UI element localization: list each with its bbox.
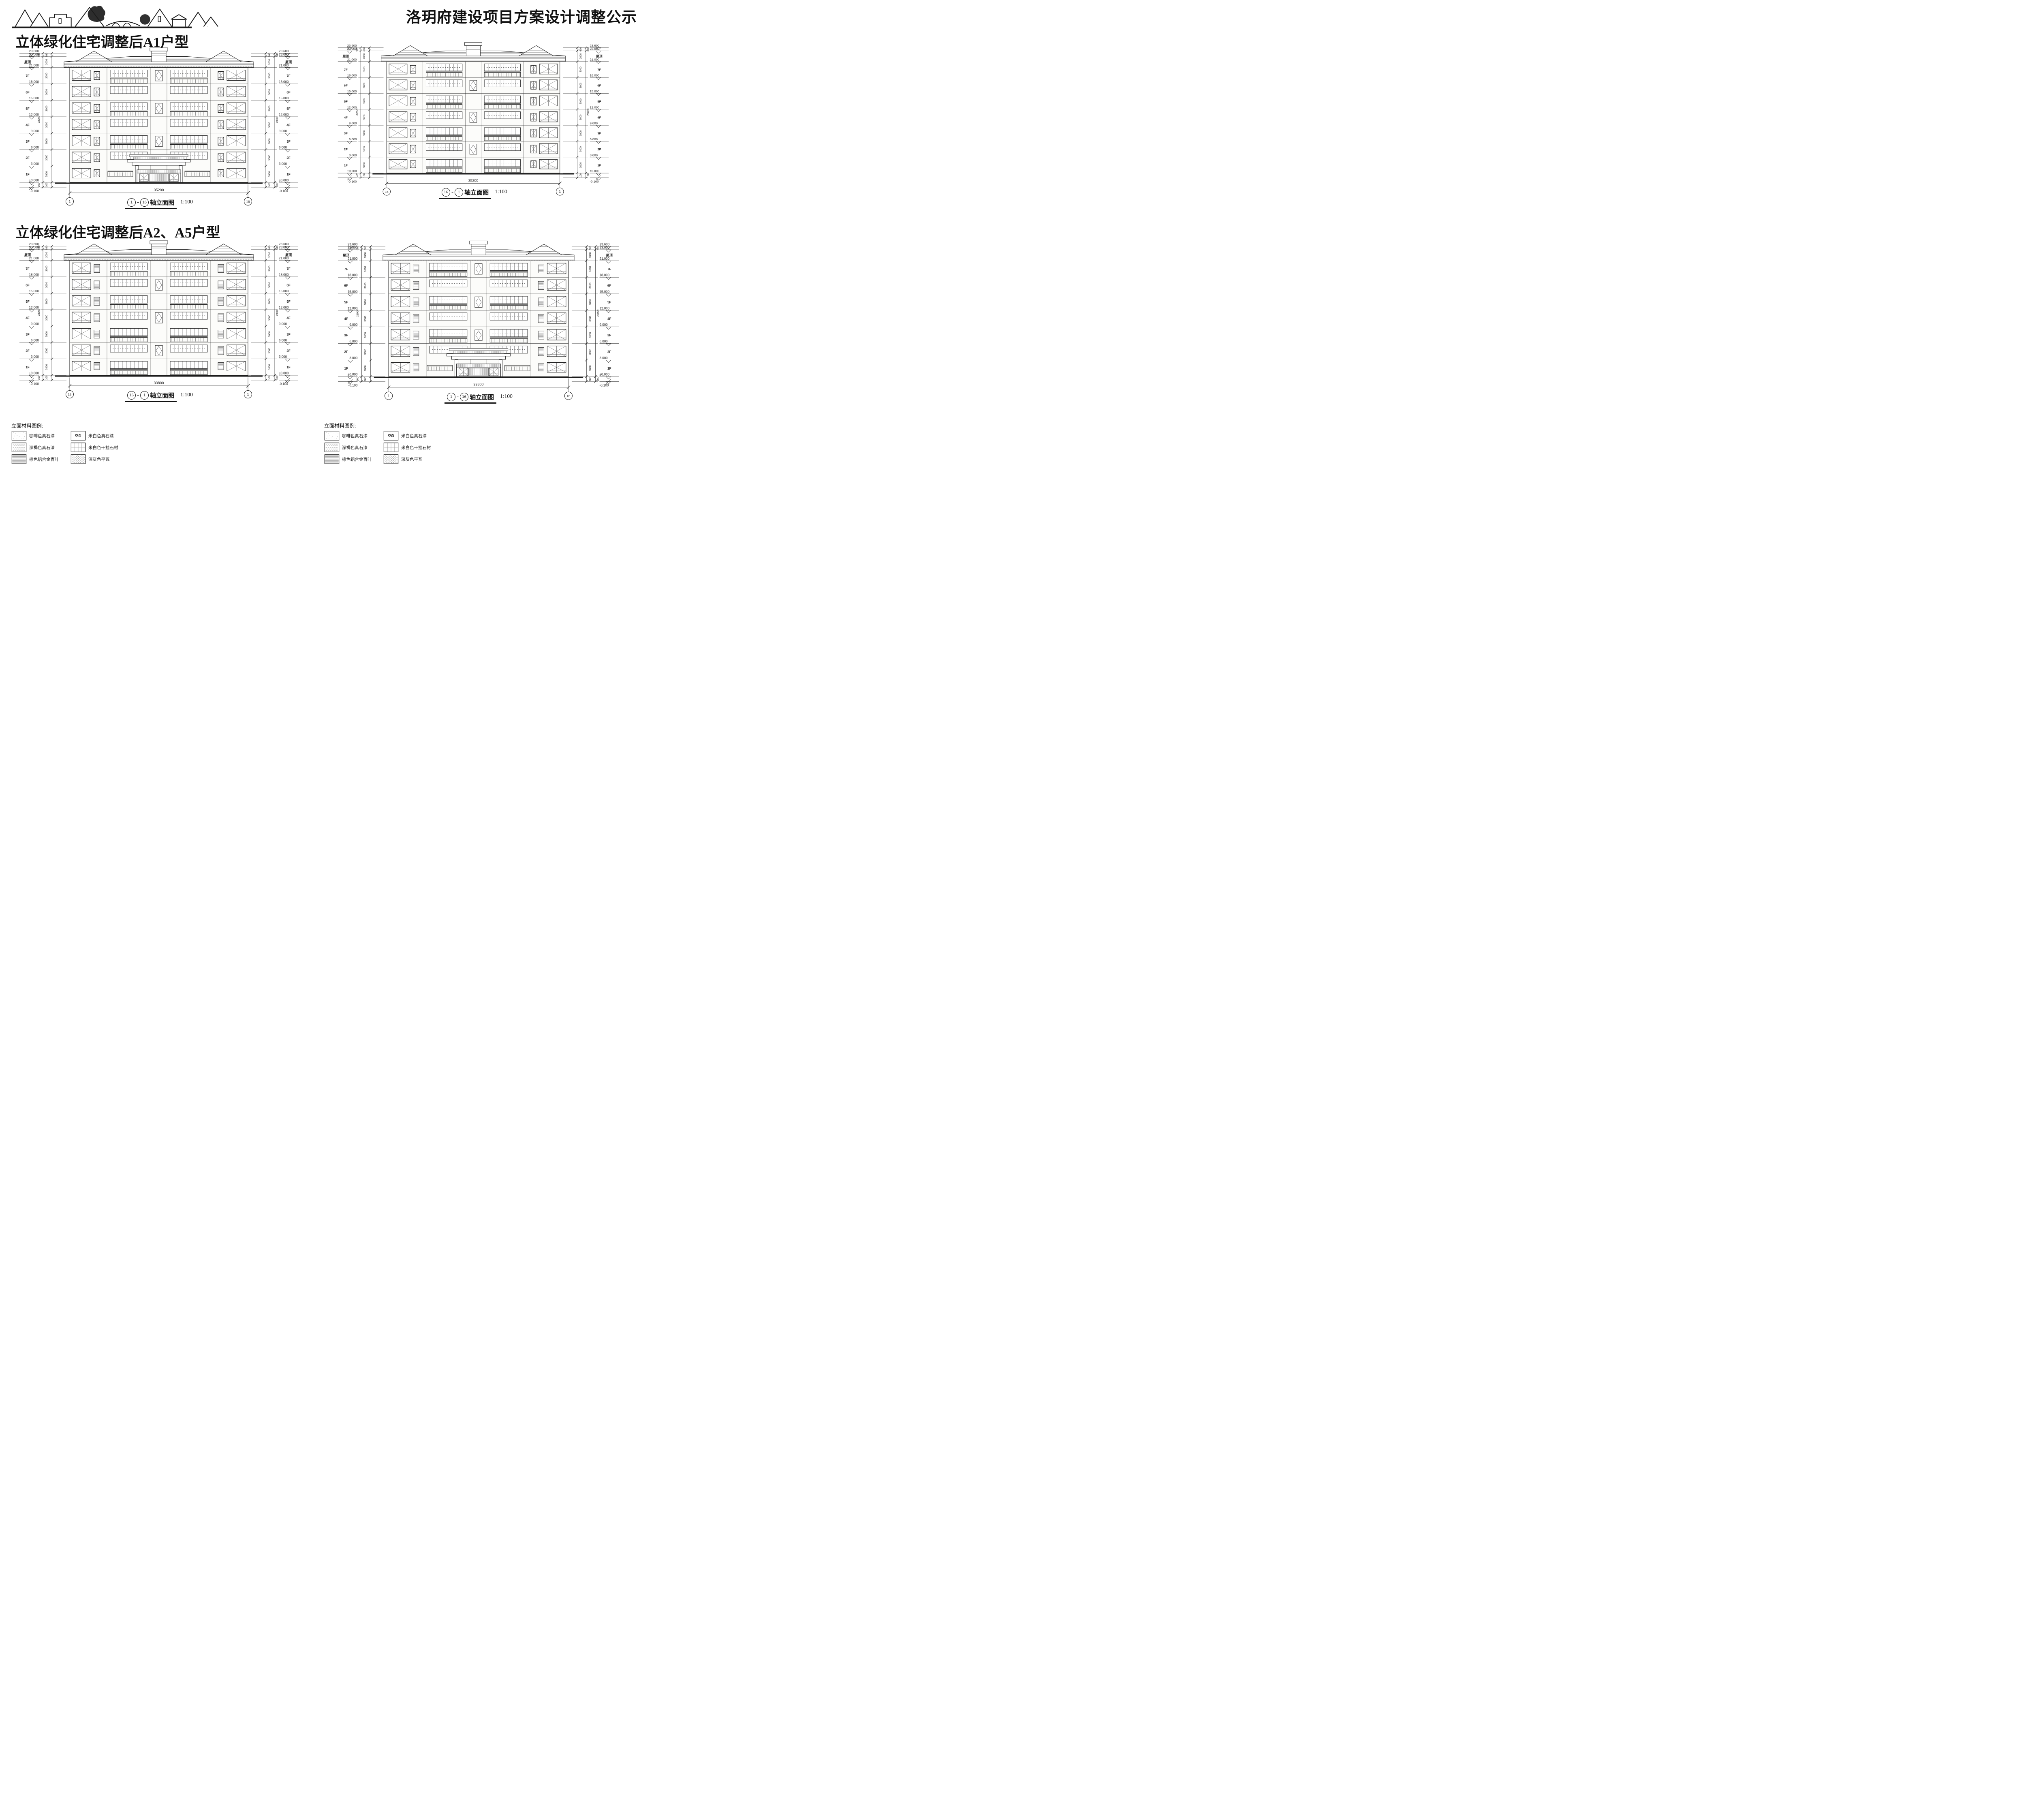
svg-text:-0.100: -0.100 [348, 180, 357, 183]
svg-text:4F: 4F [286, 123, 290, 127]
legend-swatch-louver [324, 454, 340, 464]
svg-text:18.000: 18.000 [29, 80, 39, 84]
svg-text:3000: 3000 [268, 73, 271, 79]
svg-text:4F: 4F [597, 115, 601, 119]
svg-text:35200: 35200 [468, 179, 478, 183]
svg-text:-0.100: -0.100 [30, 189, 39, 193]
svg-text:3000: 3000 [45, 73, 48, 79]
svg-text:5F: 5F [286, 107, 290, 111]
drawing-scale: 1:100 [180, 199, 193, 205]
svg-text:3F: 3F [26, 333, 29, 336]
svg-text:3000: 3000 [579, 130, 582, 136]
caption-dash: - [137, 392, 139, 399]
ruler-right: 3000300030003000300030003000200060010060… [563, 44, 609, 183]
svg-text:3000: 3000 [364, 299, 367, 305]
svg-text:9.000: 9.000 [279, 129, 287, 133]
svg-text:3000: 3000 [45, 315, 48, 321]
svg-text:12.000: 12.000 [29, 113, 39, 117]
legend-grid: 咖啡色真石漆空白米白色真石漆深褐色真石漆米白色干挂石材棕色铝合金百叶深灰色平瓦 [11, 431, 129, 464]
svg-text:100: 100 [356, 376, 359, 381]
legend-title: 立面材料图例: [324, 421, 442, 429]
svg-text:21.000: 21.000 [348, 257, 358, 261]
svg-text:3F: 3F [286, 140, 290, 143]
svg-text:3000: 3000 [268, 265, 271, 272]
legend-swatch-blank: 空白 [383, 431, 399, 441]
axis-bubble: 16 [460, 393, 468, 401]
svg-text:15.000: 15.000 [348, 290, 358, 293]
legend-item-label: 米白色真石漆 [401, 433, 427, 439]
legend-item: 咖啡色真石漆 [11, 431, 71, 441]
svg-text:-0.100: -0.100 [279, 189, 288, 193]
svg-text:6.000: 6.000 [279, 146, 287, 150]
legend-item: 空白米白色真石漆 [71, 431, 130, 441]
svg-text:9.000: 9.000 [31, 129, 39, 133]
axis-bubble: 16 [442, 188, 450, 197]
svg-text:3000: 3000 [268, 364, 271, 370]
svg-text:100: 100 [276, 182, 279, 187]
drawing-caption-main: 1-16轴立面图 [445, 393, 496, 404]
ruler-left: 3000300030003000300030003000200060010060… [19, 242, 66, 386]
svg-text:4F: 4F [344, 317, 348, 321]
svg-text:2F: 2F [26, 349, 29, 353]
svg-text:2F: 2F [286, 349, 290, 353]
svg-text:3000: 3000 [45, 265, 48, 272]
svg-text:5F: 5F [344, 100, 348, 103]
caption-text: 轴立面图 [464, 188, 489, 197]
svg-text:3000: 3000 [268, 138, 271, 144]
svg-text:3000: 3000 [364, 349, 367, 355]
axis-bubble: 1 [127, 198, 136, 207]
svg-text:5F: 5F [597, 100, 601, 103]
svg-text:-0.100: -0.100 [590, 180, 599, 183]
svg-text:6F: 6F [286, 283, 290, 287]
legend-item: 深灰色平瓦 [383, 454, 442, 464]
legend-item-label: 棕色铝合金百叶 [29, 456, 59, 462]
svg-text:6F: 6F [597, 84, 601, 88]
svg-text:15.000: 15.000 [600, 290, 610, 293]
svg-text:18.000: 18.000 [600, 274, 610, 277]
elevation-drawing: 3000300030003000300030003000200060010060… [336, 221, 622, 404]
svg-text:7F: 7F [344, 267, 348, 271]
svg-text:2000: 2000 [268, 252, 271, 258]
svg-text:3000: 3000 [364, 332, 367, 338]
svg-text:3F: 3F [344, 334, 348, 337]
legend-item: 深褐色真石漆 [324, 443, 383, 452]
legend-item: 米白色干挂石材 [71, 443, 130, 452]
svg-text:±0.000: ±0.000 [29, 179, 39, 182]
legend-item-label: 深褐色真石漆 [29, 445, 55, 451]
svg-text:3000: 3000 [579, 82, 582, 88]
svg-text:3F: 3F [26, 140, 29, 143]
svg-text:15.000: 15.000 [279, 289, 289, 293]
caption-dash: - [451, 189, 453, 196]
svg-text:3000: 3000 [363, 82, 366, 88]
svg-text:100: 100 [355, 173, 358, 178]
svg-text:23.600: 23.600 [29, 49, 39, 53]
svg-text:1F: 1F [26, 173, 29, 176]
svg-text:9.000: 9.000 [279, 322, 287, 326]
svg-text:21.000: 21.000 [29, 64, 39, 67]
elevation-drawing: 3000300030003000300030003000200060010060… [336, 24, 611, 199]
svg-text:-0.100: -0.100 [348, 383, 358, 387]
svg-text:2F: 2F [344, 350, 348, 354]
svg-text:600: 600 [276, 246, 279, 250]
svg-text:3000: 3000 [363, 146, 366, 152]
axis-bubble: 1 [140, 391, 149, 400]
svg-text:3000: 3000 [268, 282, 271, 288]
building-facade [55, 241, 263, 376]
svg-text:3000: 3000 [45, 331, 48, 337]
svg-text:18.000: 18.000 [348, 274, 358, 277]
svg-text:7F: 7F [286, 267, 290, 271]
svg-text:3000: 3000 [268, 155, 271, 161]
caption-dash: - [137, 199, 139, 206]
svg-text:3000: 3000 [364, 365, 367, 371]
svg-text:100: 100 [45, 182, 48, 187]
svg-text:100: 100 [363, 173, 366, 178]
legend-grid: 咖啡色真石漆空白米白色真石漆深褐色真石漆米白色干挂石材棕色铝合金百叶深灰色平瓦 [324, 431, 442, 464]
svg-text:空白: 空白 [388, 434, 394, 438]
building-facade [372, 43, 574, 174]
material-legend: 立面材料图例: 咖啡色真石漆空白米白色真石漆深褐色真石漆米白色干挂石材棕色铝合金… [11, 421, 129, 464]
svg-text:600: 600 [363, 47, 366, 51]
svg-text:3000: 3000 [45, 171, 48, 177]
svg-text:3000: 3000 [268, 348, 271, 354]
svg-text:±0.000: ±0.000 [600, 373, 610, 376]
svg-text:±0.000: ±0.000 [347, 169, 357, 173]
legend-swatch-speckle [11, 431, 27, 441]
svg-text:6F: 6F [26, 90, 29, 94]
svg-text:21.000: 21.000 [279, 64, 289, 67]
legend-item-label: 深灰色平瓦 [88, 456, 110, 462]
svg-text:6F: 6F [344, 84, 348, 88]
svg-text:3000: 3000 [268, 331, 271, 337]
svg-text:5F: 5F [607, 300, 611, 304]
svg-text:屋顶: 屋顶 [343, 253, 349, 257]
drawing-scale: 1:100 [495, 188, 507, 195]
svg-text:3000: 3000 [363, 114, 366, 120]
svg-text:屋顶: 屋顶 [342, 55, 349, 58]
svg-text:600: 600 [276, 53, 279, 57]
svg-text:7F: 7F [26, 74, 29, 78]
svg-text:3.000: 3.000 [349, 153, 357, 157]
svg-text:3000: 3000 [45, 122, 48, 128]
svg-text:2000: 2000 [364, 252, 367, 258]
svg-text:3000: 3000 [45, 364, 48, 370]
svg-text:3F: 3F [344, 132, 348, 135]
material-legend: 立面材料图例: 咖啡色真石漆空白米白色真石漆深褐色真石漆米白色干挂石材棕色铝合金… [324, 421, 442, 464]
svg-text:100: 100 [587, 173, 590, 178]
svg-text:33800: 33800 [154, 381, 164, 385]
svg-text:2F: 2F [607, 350, 611, 354]
svg-text:2000: 2000 [45, 59, 48, 65]
elevation-panel-a2a5-front: 3000300030003000300030003000200060010060… [336, 221, 622, 404]
caption-dash: - [457, 394, 459, 400]
svg-text:9.000: 9.000 [590, 122, 598, 125]
svg-text:7F: 7F [286, 74, 290, 78]
svg-text:12.000: 12.000 [29, 306, 39, 310]
svg-text:15.000: 15.000 [590, 90, 600, 93]
svg-text:2F: 2F [344, 148, 348, 151]
svg-text:4F: 4F [26, 316, 29, 320]
svg-text:2000: 2000 [363, 53, 366, 59]
svg-text:3000: 3000 [363, 162, 366, 168]
building-facade [55, 48, 263, 183]
svg-text:18.000: 18.000 [279, 273, 289, 277]
ruler-right: 3000300030003000300030003000200060010060… [251, 242, 298, 386]
legend-swatch-speckle [324, 431, 340, 441]
svg-text:23000: 23000 [587, 108, 590, 115]
svg-text:100: 100 [268, 182, 271, 187]
caption-text: 轴立面图 [150, 198, 174, 207]
legend-swatch-louver [11, 454, 27, 464]
svg-text:1F: 1F [286, 366, 290, 369]
svg-text:3000: 3000 [589, 332, 592, 338]
svg-text:100: 100 [597, 376, 600, 381]
elevation-panel-a1-rear: 3000300030003000300030003000200060010060… [336, 24, 611, 199]
huizhou-skyline-sketch [11, 3, 219, 29]
svg-text:12.000: 12.000 [347, 105, 357, 109]
svg-text:3.000: 3.000 [279, 162, 287, 166]
svg-text:6.000: 6.000 [349, 340, 358, 343]
legend-item: 深褐色真石漆 [11, 443, 71, 452]
svg-text:3000: 3000 [268, 298, 271, 304]
svg-text:1F: 1F [344, 163, 348, 167]
legend-swatch-dashes [11, 443, 27, 452]
legend-swatch-dashes [324, 443, 340, 452]
svg-text:3000: 3000 [579, 146, 582, 152]
elevation-drawing: 3000300030003000300030003000200060010060… [17, 28, 301, 209]
svg-text:12.000: 12.000 [279, 113, 289, 117]
svg-text:3000: 3000 [589, 266, 592, 272]
svg-text:3F: 3F [607, 334, 611, 337]
svg-text:空白: 空白 [75, 434, 81, 438]
svg-text:3000: 3000 [363, 66, 366, 73]
svg-text:12.000: 12.000 [279, 306, 289, 310]
svg-text:2000: 2000 [45, 252, 48, 258]
svg-text:9.000: 9.000 [600, 323, 608, 327]
svg-text:6.000: 6.000 [349, 137, 357, 141]
drawing-caption: 1-16轴立面图1:100 [17, 198, 301, 209]
legend-item-label: 米白色干挂石材 [401, 445, 431, 451]
svg-text:4F: 4F [286, 316, 290, 320]
svg-text:12.000: 12.000 [600, 306, 610, 310]
drawing-caption: 16-1轴立面图1:100 [336, 188, 611, 199]
elevation-panel-a2a5-rear: 3000300030003000300030003000200060010060… [17, 221, 301, 402]
svg-text:5F: 5F [26, 300, 29, 304]
axis-bubble: 1 [455, 188, 463, 197]
svg-text:3000: 3000 [45, 155, 48, 161]
svg-text:±0.000: ±0.000 [279, 179, 289, 182]
svg-text:21.000: 21.000 [600, 257, 610, 261]
svg-text:2000: 2000 [589, 252, 592, 258]
svg-text:23000: 23000 [597, 309, 600, 317]
building-facade [374, 241, 583, 377]
svg-text:2F: 2F [597, 148, 601, 151]
svg-text:12.000: 12.000 [590, 105, 600, 109]
svg-text:屋顶: 屋顶 [606, 253, 613, 257]
legend-item-label: 深灰色平瓦 [401, 456, 423, 462]
svg-text:600: 600 [587, 47, 590, 51]
svg-text:3000: 3000 [45, 138, 48, 144]
svg-text:3000: 3000 [45, 298, 48, 304]
svg-text:600: 600 [597, 246, 600, 250]
legend-swatch-grid [383, 443, 399, 452]
svg-text:1F: 1F [26, 366, 29, 369]
svg-text:35200: 35200 [154, 188, 164, 192]
svg-text:21.000: 21.000 [590, 58, 600, 61]
legend-swatch-tile [383, 454, 399, 464]
svg-text:23.600: 23.600 [279, 242, 289, 246]
svg-text:15.000: 15.000 [347, 90, 357, 93]
legend-swatch-tile [71, 454, 86, 464]
svg-text:屋顶: 屋顶 [285, 253, 292, 257]
svg-text:5F: 5F [286, 300, 290, 304]
legend-item-label: 咖啡色真石漆 [29, 433, 55, 439]
svg-text:1F: 1F [286, 173, 290, 176]
svg-text:2000: 2000 [579, 53, 582, 59]
svg-text:7F: 7F [26, 267, 29, 271]
axis-bubble: 16 [127, 391, 136, 400]
tree-sketch [140, 14, 150, 25]
svg-text:3.000: 3.000 [349, 356, 358, 360]
legend-item: 咖啡色真石漆 [324, 431, 383, 441]
svg-text:3000: 3000 [363, 98, 366, 105]
svg-text:23.600: 23.600 [29, 242, 39, 246]
legend-item-label: 米白色干挂石材 [88, 445, 118, 451]
svg-text:3.000: 3.000 [600, 356, 608, 360]
svg-text:1F: 1F [597, 163, 601, 167]
svg-text:3000: 3000 [579, 114, 582, 120]
svg-text:屋顶: 屋顶 [24, 253, 31, 257]
svg-text:屋顶: 屋顶 [596, 55, 603, 58]
legend-item-label: 米白色真石漆 [88, 433, 114, 439]
svg-text:100: 100 [38, 375, 41, 380]
svg-text:100: 100 [579, 173, 582, 178]
svg-text:18.000: 18.000 [590, 74, 600, 77]
svg-text:33800: 33800 [473, 382, 483, 386]
svg-text:2F: 2F [286, 156, 290, 160]
svg-text:3000: 3000 [579, 66, 582, 73]
elevation-drawing: 3000300030003000300030003000200060010060… [17, 221, 301, 402]
ruler-left: 3000300030003000300030003000200060010060… [338, 242, 385, 387]
ground-baseline [12, 27, 192, 28]
svg-text:屋顶: 屋顶 [24, 60, 31, 64]
drawing-caption-main: 16-1轴立面图 [125, 391, 177, 402]
svg-text:3F: 3F [286, 333, 290, 336]
page: { "header": { "title": "洛玥府建设项目方案设计调整公示"… [0, 0, 643, 455]
svg-text:±0.000: ±0.000 [29, 372, 39, 375]
legend-item: 深灰色平瓦 [71, 454, 130, 464]
svg-text:±0.000: ±0.000 [279, 372, 289, 375]
svg-text:23.600: 23.600 [348, 242, 358, 246]
svg-text:18.000: 18.000 [279, 80, 289, 84]
legend-swatch-blank: 空白 [71, 431, 86, 441]
svg-text:3000: 3000 [364, 282, 367, 289]
svg-text:6.000: 6.000 [31, 339, 39, 342]
svg-text:3000: 3000 [579, 162, 582, 168]
svg-text:6F: 6F [344, 284, 348, 288]
svg-text:3000: 3000 [45, 89, 48, 95]
svg-text:3.000: 3.000 [31, 355, 39, 359]
svg-text:3000: 3000 [589, 282, 592, 289]
svg-text:9.000: 9.000 [349, 122, 357, 125]
svg-text:9.000: 9.000 [31, 322, 39, 326]
axis-bubble: 1 [447, 393, 455, 401]
svg-text:18.000: 18.000 [29, 273, 39, 277]
drawing-caption: 1-16轴立面图1:100 [336, 393, 622, 404]
svg-text:5F: 5F [344, 300, 348, 304]
svg-text:7F: 7F [607, 267, 611, 271]
legend-item: 棕色铝合金百叶 [324, 454, 383, 464]
svg-text:3000: 3000 [589, 365, 592, 371]
axis-bubble: 16 [140, 198, 149, 207]
svg-text:7F: 7F [597, 68, 601, 71]
ruler-left: 3000300030003000300030003000200060010060… [338, 44, 384, 183]
elevation-panel-a1-front: 3000300030003000300030003000200060010060… [17, 28, 301, 209]
legend-item: 棕色铝合金百叶 [11, 454, 71, 464]
svg-text:15.000: 15.000 [29, 96, 39, 100]
legend-title: 立面材料图例: [11, 421, 129, 429]
svg-text:±0.000: ±0.000 [348, 373, 358, 376]
svg-text:3000: 3000 [364, 316, 367, 322]
svg-text:3000: 3000 [589, 349, 592, 355]
drawing-scale: 1:100 [180, 391, 193, 398]
svg-text:±0.000: ±0.000 [590, 169, 600, 173]
svg-text:3000: 3000 [45, 348, 48, 354]
svg-text:3.000: 3.000 [31, 162, 39, 166]
svg-text:21.000: 21.000 [29, 257, 39, 260]
legend-item: 米白色干挂石材 [383, 443, 442, 452]
svg-text:100: 100 [268, 375, 271, 380]
svg-text:3000: 3000 [579, 98, 582, 105]
svg-text:4F: 4F [26, 123, 29, 127]
svg-text:6.000: 6.000 [590, 137, 598, 141]
svg-text:-0.100: -0.100 [30, 382, 39, 386]
svg-text:4F: 4F [344, 115, 348, 119]
svg-text:7F: 7F [344, 68, 348, 71]
svg-text:15.000: 15.000 [279, 96, 289, 100]
svg-text:21.000: 21.000 [279, 257, 289, 260]
svg-text:23.600: 23.600 [590, 44, 600, 47]
svg-text:6F: 6F [286, 90, 290, 94]
legend-item-label: 深褐色真石漆 [342, 445, 368, 451]
svg-text:3000: 3000 [589, 299, 592, 305]
svg-text:6.000: 6.000 [31, 146, 39, 150]
svg-text:3000: 3000 [589, 316, 592, 322]
svg-text:4F: 4F [607, 317, 611, 321]
svg-text:-0.100: -0.100 [279, 382, 288, 386]
svg-text:5F: 5F [26, 107, 29, 111]
legend-item-label: 咖啡色真石漆 [342, 433, 368, 439]
legend-item-label: 棕色铝合金百叶 [342, 456, 372, 462]
svg-text:18.000: 18.000 [347, 74, 357, 77]
svg-text:6F: 6F [26, 283, 29, 287]
drawing-caption-main: 1-16轴立面图 [125, 198, 177, 209]
drawing-caption: 16-1轴立面图1:100 [17, 391, 301, 402]
svg-text:23000: 23000 [276, 115, 279, 123]
svg-text:3.000: 3.000 [279, 355, 287, 359]
svg-text:100: 100 [364, 376, 367, 381]
svg-text:12.000: 12.000 [348, 306, 358, 310]
svg-text:-0.100: -0.100 [600, 383, 609, 387]
svg-text:屋顶: 屋顶 [285, 60, 292, 64]
svg-text:1F: 1F [344, 367, 348, 370]
svg-text:100: 100 [38, 182, 41, 187]
svg-text:2F: 2F [26, 156, 29, 160]
svg-text:600: 600 [579, 47, 582, 51]
svg-text:23000: 23000 [276, 308, 279, 316]
